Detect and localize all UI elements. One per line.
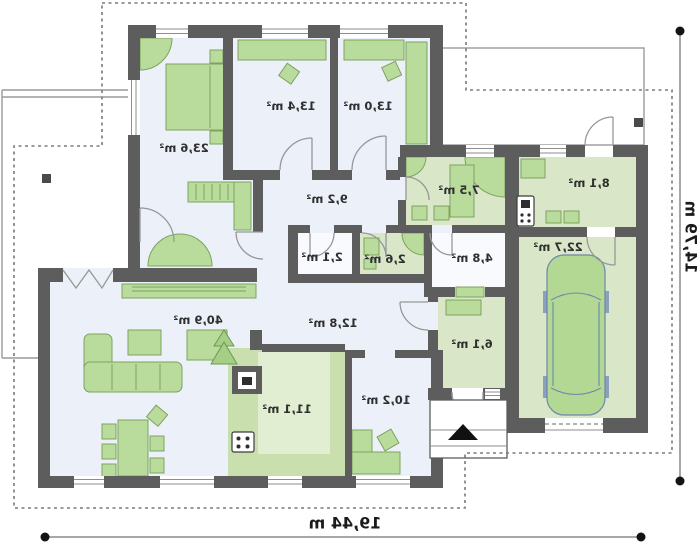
wardrobe [406,42,427,144]
room-label-garage: 22,7 m² [533,240,582,254]
room-label-bedroom-3: 13,0 m² [343,99,392,113]
stove-icon [232,432,254,452]
window [74,476,104,488]
chair [102,444,116,459]
room-label-bedroom-1: 23,6 m² [159,141,208,155]
entrance-porch [430,400,507,458]
room-label-bedroom-2: 13,4 m² [266,99,315,113]
window [262,25,308,38]
desk [352,452,400,474]
door-boiler-terrace [585,117,613,145]
window [340,25,388,38]
boiler-stove-icon [517,196,534,226]
terrace-post [634,118,643,127]
floor-plan-drawing: 23,6 m² 13,4 m² 13,0 m² 9,2 m² 2,1 m² 2,… [0,0,700,544]
dimension-width-label: 19,44 m [309,514,382,533]
window [128,80,140,135]
room-label-kitchen: 11,1 m² [262,402,311,416]
sofa [84,362,182,392]
bed [166,64,224,130]
room-label-office: 10,2 m² [361,393,410,407]
side-table [128,330,161,355]
window [160,476,214,488]
dimension-depth: 14,79 m [676,27,700,486]
chair [102,424,116,439]
door-mat [446,300,481,315]
room-label-wc: 2,6 m² [364,252,405,266]
room-label-closet: 2,1 m² [301,250,342,264]
window [485,389,500,399]
room-label-vestibule: 6,1 m² [451,337,492,351]
window [466,145,494,157]
room-label-boiler: 8,1 m² [568,176,609,190]
chair [150,436,164,451]
terrace-post [42,174,51,183]
room-label-bathroom: 7,5 m² [438,183,479,197]
floor-plan-page: 23,6 m² 13,4 m² 13,0 m² 9,2 m² 2,1 m² 2,… [0,0,700,544]
dimension-depth-label: 14,79 m [682,201,700,274]
window [356,476,410,488]
chair [150,458,164,473]
desk-return [352,430,372,452]
room-label-pantry: 4,8 m² [451,251,492,265]
dining-table [118,420,148,476]
room-label-corridor: 9,2 m² [306,192,347,206]
dimension-width: 19,44 m [41,514,646,542]
fireplace-icon [238,372,256,389]
window [540,145,566,157]
car [543,255,609,415]
garage-door [545,418,603,433]
room-label-hall: 12,8 m² [308,316,357,330]
door-mat [456,287,484,297]
window [156,25,188,38]
room-label-living: 40,9 m² [173,313,222,327]
desk [344,40,404,60]
window [268,476,302,488]
desk [238,40,326,60]
